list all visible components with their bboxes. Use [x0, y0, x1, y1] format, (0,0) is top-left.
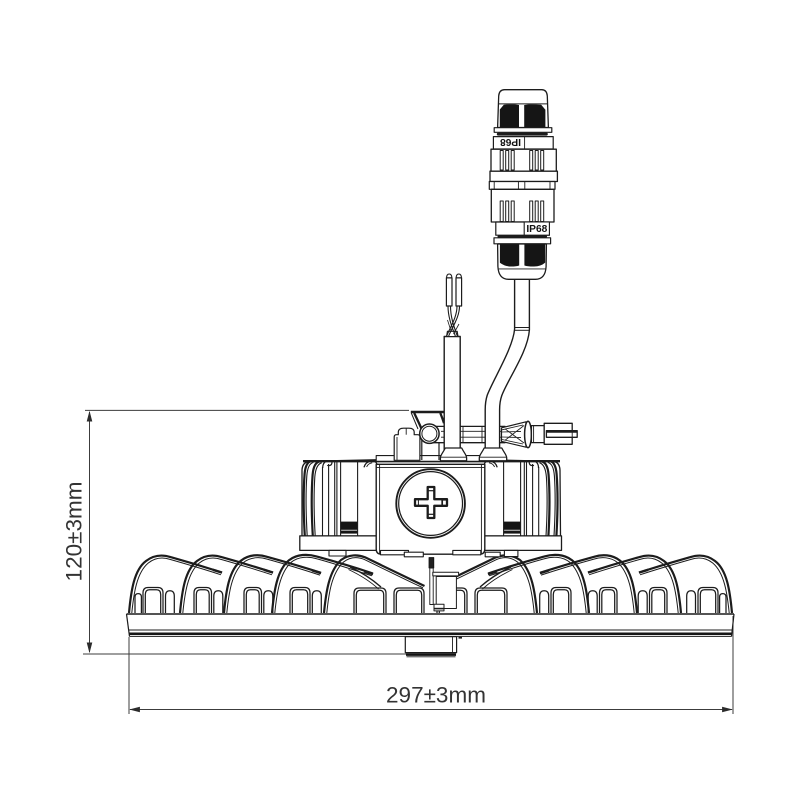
- svg-text:120±3mm: 120±3mm: [62, 482, 87, 582]
- svg-text:IP68: IP68: [500, 136, 521, 147]
- svg-text:297±3mm: 297±3mm: [386, 683, 486, 708]
- svg-text:IP68: IP68: [526, 224, 547, 235]
